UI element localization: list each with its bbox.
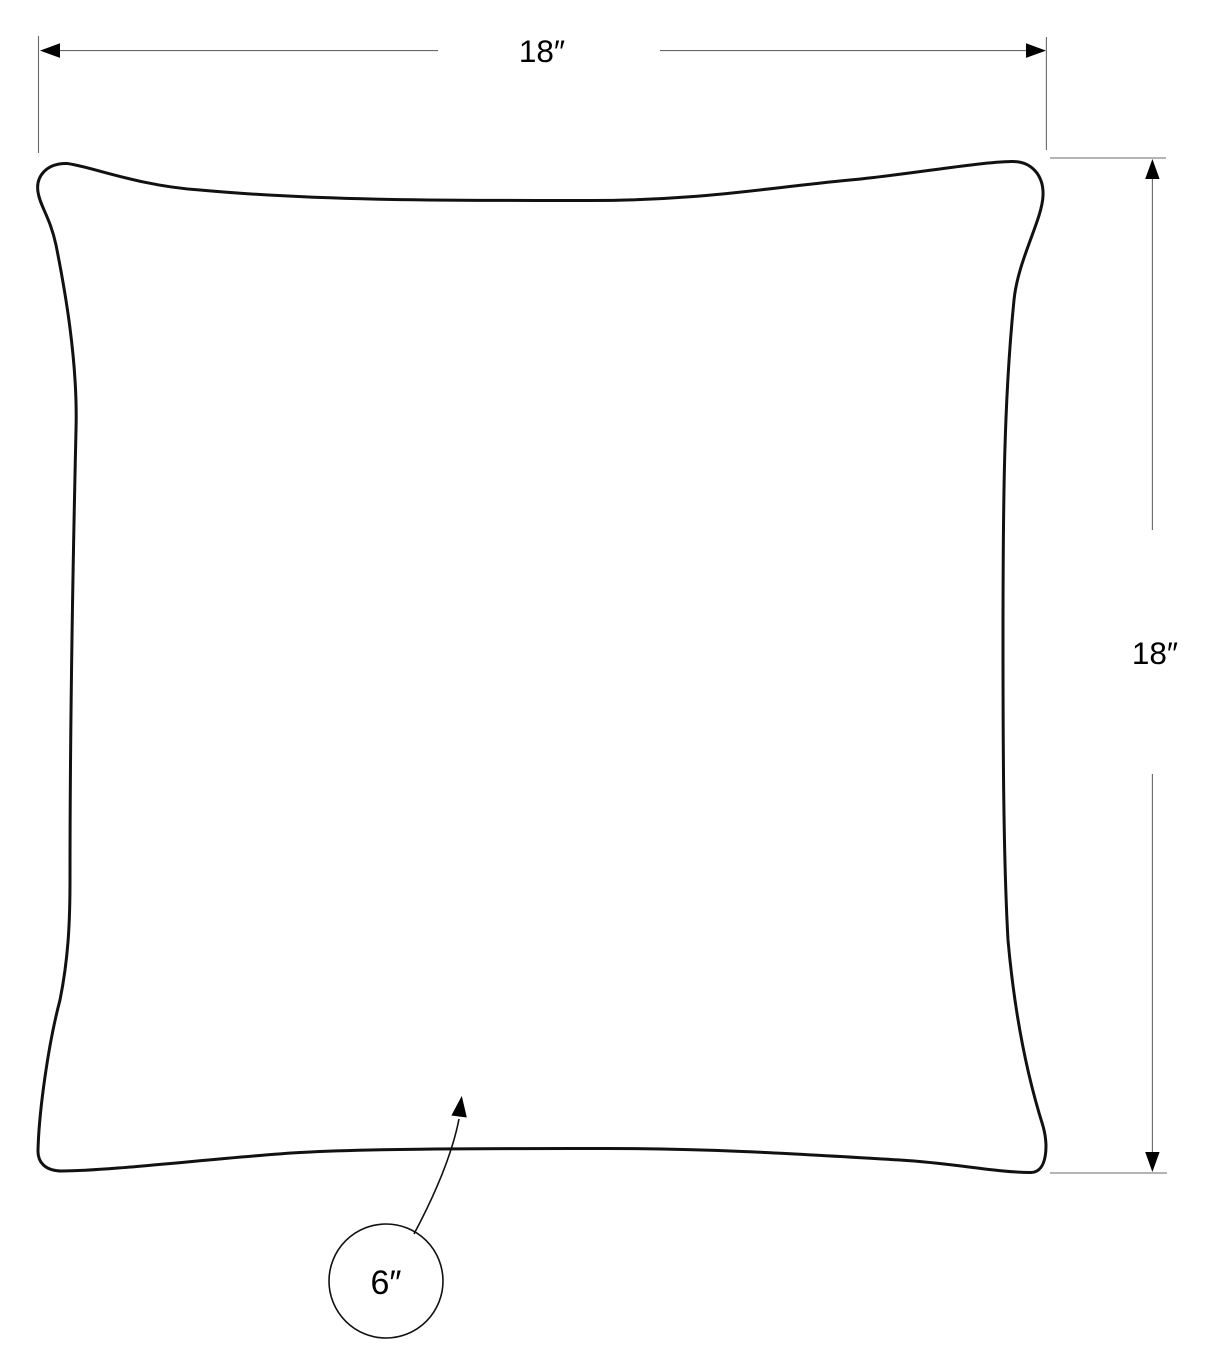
svg-text:18″: 18″ bbox=[519, 33, 565, 69]
svg-text:6″: 6″ bbox=[371, 1264, 402, 1302]
svg-text:18″: 18″ bbox=[1132, 635, 1178, 671]
